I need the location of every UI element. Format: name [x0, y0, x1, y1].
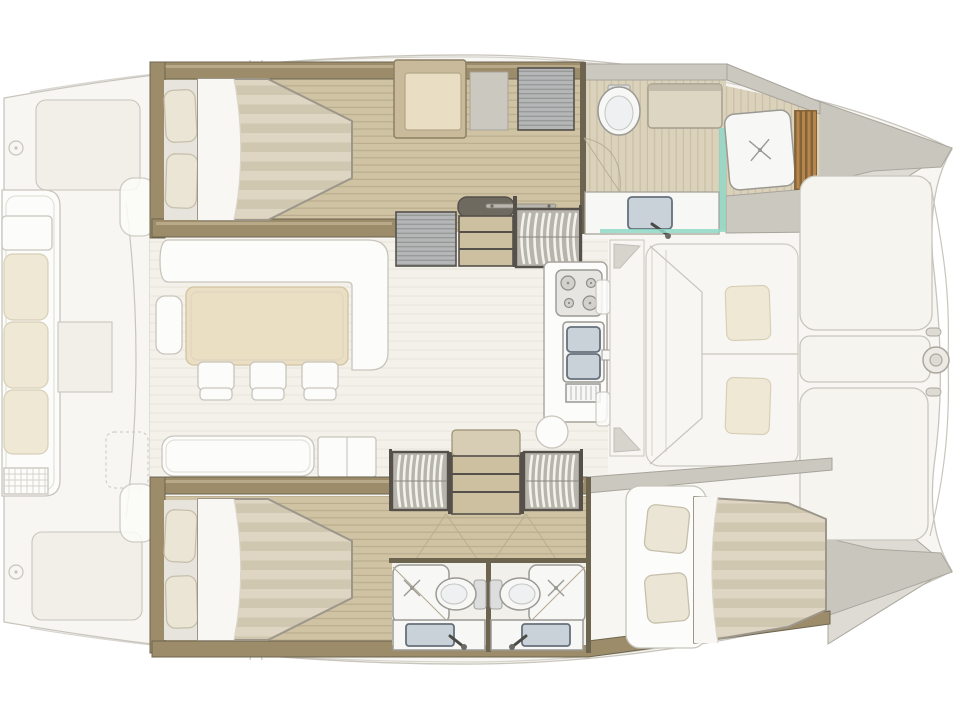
catamaran-layout-diagram — [0, 0, 960, 720]
bathroom-top-wall — [584, 64, 727, 80]
pillow — [164, 89, 198, 143]
dining-table — [186, 287, 348, 365]
owner-cabin-bottom-wall — [152, 219, 396, 237]
forward-cushion — [725, 377, 771, 435]
bow-cleat — [926, 388, 941, 396]
bow-cleat — [926, 328, 941, 336]
dresser-top — [405, 73, 461, 130]
dining-chair — [302, 362, 338, 400]
deck-fitting-bottom-dot — [14, 570, 17, 573]
shower — [724, 109, 796, 190]
bar-stool — [536, 416, 568, 448]
companionway-steps — [459, 216, 513, 266]
storage-locker — [396, 212, 456, 266]
shower-drain-dot — [410, 586, 414, 590]
wall-cabinet-edge — [648, 84, 722, 91]
starboard-hull-left-wall — [150, 477, 165, 653]
sink-faucet-handle — [509, 644, 515, 650]
companionway-frame — [513, 196, 517, 267]
bench-cushion — [4, 390, 48, 454]
sunpad — [800, 176, 932, 330]
cabin-bathroom-divider — [586, 477, 591, 653]
bench-cushion — [4, 254, 48, 320]
transom-hatch-top — [36, 100, 140, 190]
guest-bed-forward — [626, 486, 826, 648]
bed-sheet — [198, 499, 241, 640]
sink-faucet-handle — [461, 644, 467, 650]
sink-bowl — [567, 327, 600, 352]
vanity-sink — [628, 197, 672, 229]
wardrobe — [470, 72, 508, 130]
bed-sheet — [198, 79, 241, 220]
foredeck — [800, 176, 949, 540]
forward-cushion — [725, 285, 771, 341]
dining-chair — [250, 362, 286, 400]
transom-hatch-bottom — [32, 532, 142, 620]
shower-drain-dot — [554, 586, 558, 590]
sink-faucet-handle — [665, 233, 671, 239]
hanging-locker — [518, 68, 574, 130]
cockpit-grille-hatch — [4, 468, 48, 494]
sink-bowl — [567, 354, 600, 379]
companionway-landing — [452, 430, 520, 456]
cockpit-table — [58, 322, 112, 392]
pillow — [164, 509, 198, 563]
mast-step — [596, 280, 610, 314]
anchor-winch-drum — [930, 354, 942, 366]
shower-glass-partition — [719, 128, 726, 232]
companionway-frame — [389, 449, 392, 511]
dressing-area — [394, 60, 574, 138]
vanity-sink — [406, 624, 454, 646]
sunpad — [800, 336, 930, 382]
companionway-frame — [580, 449, 583, 511]
companionway-frame — [579, 205, 582, 267]
pillow — [165, 153, 198, 208]
cockpit-side-panel — [2, 216, 52, 250]
mast-step — [596, 392, 610, 426]
vanity-sink — [522, 624, 570, 646]
saloon-stool — [156, 296, 182, 354]
dining-chair — [198, 362, 234, 400]
handrail — [486, 204, 556, 208]
stove — [556, 270, 602, 316]
handrail-post — [490, 204, 493, 207]
bench-cushion — [4, 322, 48, 388]
deck-fitting-top-dot — [14, 146, 17, 149]
companionway-steps — [452, 456, 520, 514]
saloon-side-bench — [162, 436, 314, 476]
counter-glass-edge — [600, 229, 720, 233]
owner-cabin-bottom-wall-hi — [156, 222, 392, 225]
pillow — [644, 504, 691, 554]
port-hull-left-wall — [150, 62, 165, 238]
door-frame — [610, 240, 644, 456]
handrail-post — [547, 204, 550, 207]
guest-bathrooms — [389, 558, 589, 652]
port-hull-top-wall-hi — [156, 65, 580, 68]
pillow — [644, 572, 690, 623]
pillow — [165, 575, 198, 628]
